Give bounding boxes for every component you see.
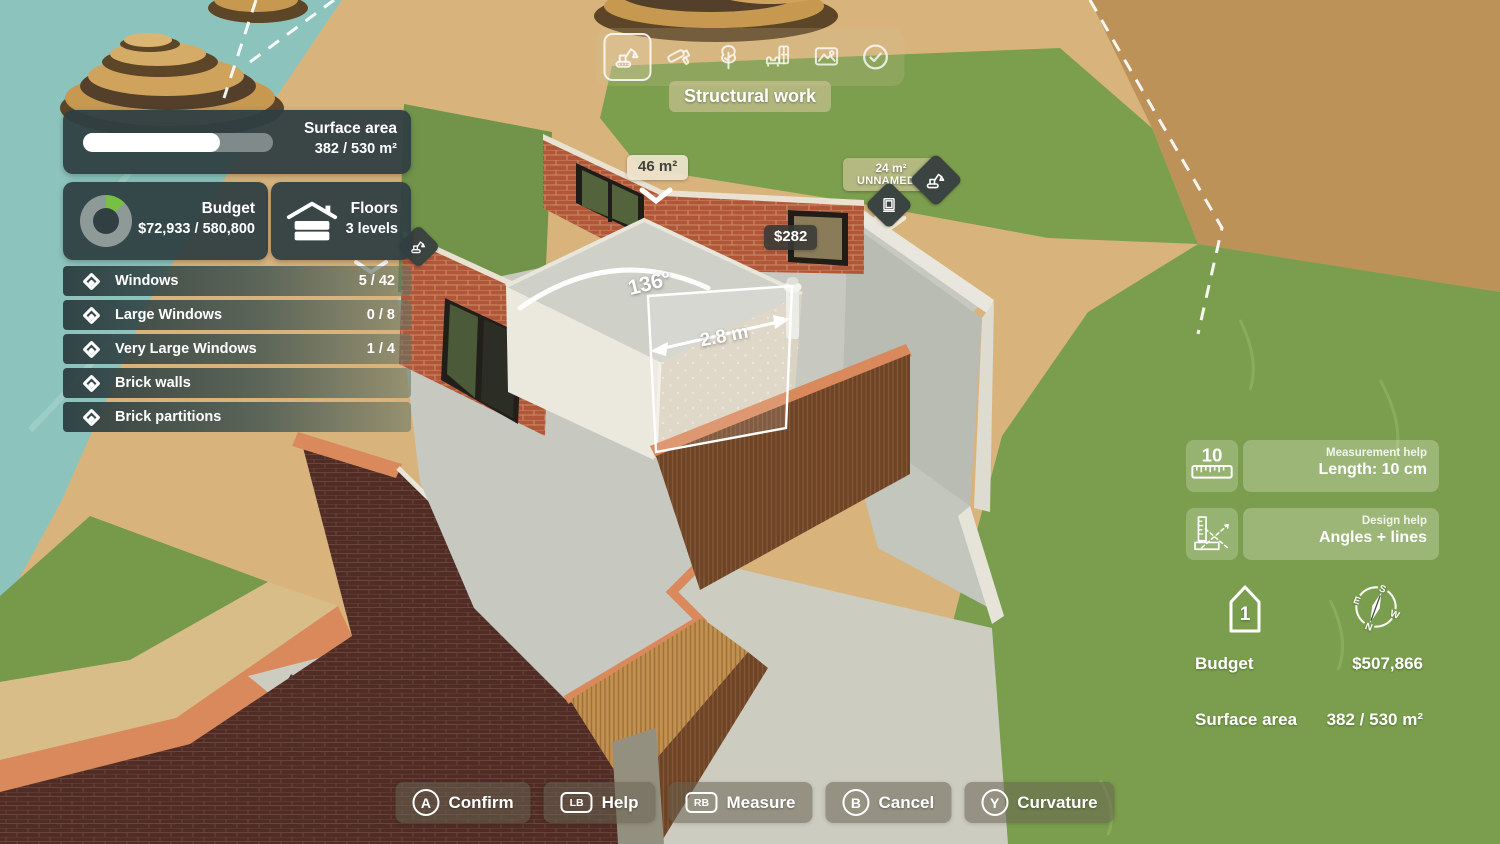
objective-row-large-windows: Large Windows 0 / 8 (63, 300, 411, 330)
build-mode-toolbar (596, 28, 905, 86)
measurement-help-category: Measurement help (1243, 447, 1427, 459)
objective-row-very-large-windows: Very Large Windows 1 / 4 (63, 334, 411, 364)
svg-text:S: S (1377, 583, 1387, 596)
current-floor-icon: 1 (1223, 580, 1267, 636)
toolbar-icon-excavator[interactable] (604, 33, 652, 81)
toolbar-icon-paint-roller[interactable] (659, 36, 701, 78)
design-help-category: Design help (1243, 515, 1427, 527)
toolbar-icon-tree[interactable] (708, 36, 750, 78)
info-budget-label: Budget (1195, 654, 1254, 674)
confirm-button[interactable]: A Confirm (395, 782, 530, 823)
surface-area-value: 382 / 530 m² (304, 141, 397, 157)
toolbar-icon-confirm-check[interactable] (855, 36, 897, 78)
info-budget-value: $507,866 (1352, 654, 1423, 674)
gamepad-b-icon: B (842, 789, 869, 816)
compass-icon: S W N E (1347, 578, 1405, 636)
budget-title: Budget (138, 200, 255, 218)
floors-panel: Floors 3 levels (271, 182, 411, 260)
toolbar-icon-terrain[interactable] (806, 36, 848, 78)
floors-icon (285, 199, 339, 245)
objective-diamond-icon (82, 306, 100, 324)
toolbar-category-label: Structural work (669, 81, 831, 112)
angle-ruler-icon (1186, 508, 1238, 560)
objective-count: 0 / 8 (367, 307, 395, 323)
surface-area-title: Surface area (304, 120, 397, 138)
controller-hints-bar: A Confirm LB Help RB Measure B Cancel Y … (395, 782, 1114, 823)
help-button[interactable]: LB Help (544, 782, 656, 823)
objectives-list: Windows 5 / 42 Large Windows 0 / 8 Very … (63, 266, 411, 436)
measurement-help-value: Length: 10 cm (1243, 461, 1427, 479)
design-help-value: Angles + lines (1243, 529, 1427, 547)
curvature-button[interactable]: Y Curvature (964, 782, 1114, 823)
info-surface-value: 382 / 530 m² (1327, 710, 1423, 730)
price-tag[interactable]: $282 (764, 225, 817, 250)
floors-value: 3 levels (346, 221, 398, 237)
cancel-button[interactable]: B Cancel (825, 782, 951, 823)
game-screen: 46 m² $282 24 m² UNNAMED 4 136° 2.8 m (0, 0, 1500, 844)
svg-text:N: N (1363, 621, 1373, 634)
room-area-tag[interactable]: 46 m² (627, 155, 688, 180)
objective-diamond-icon (82, 408, 100, 426)
gamepad-a-icon: A (412, 789, 439, 816)
svg-text:10: 10 (1202, 445, 1223, 466)
objective-label: Large Windows (115, 307, 222, 323)
measure-button[interactable]: RB Measure (668, 782, 812, 823)
surface-progress-fill (83, 133, 220, 152)
objective-label: Windows (115, 273, 179, 289)
objective-label: Very Large Windows (115, 341, 257, 357)
objective-label: Brick walls (115, 375, 191, 391)
floors-title: Floors (346, 200, 398, 218)
gamepad-rb-icon: RB (685, 792, 717, 813)
svg-text:1: 1 (1240, 604, 1251, 625)
objective-diamond-icon (82, 374, 100, 392)
objective-row-brick-partitions: Brick partitions (63, 402, 411, 432)
objective-diamond-icon (82, 340, 100, 358)
objective-count: 5 / 42 (359, 273, 395, 289)
surface-progress-bar (83, 133, 273, 152)
info-surface-label: Surface area (1195, 710, 1297, 730)
surface-area-panel: Surface area 382 / 530 m² (63, 110, 411, 174)
objective-count: 1 / 4 (367, 341, 395, 357)
objective-row-brick-walls: Brick walls (63, 368, 411, 398)
budget-value: $72,933 / 580,800 (138, 221, 255, 237)
objective-diamond-icon (82, 272, 100, 290)
svg-text:E: E (1352, 595, 1362, 608)
gamepad-lb-icon: LB (561, 792, 593, 813)
objective-row-windows: Windows 5 / 42 (63, 266, 411, 296)
budget-donut (80, 195, 132, 247)
objective-label: Brick partitions (115, 409, 221, 425)
toolbar-icon-furniture[interactable] (757, 36, 799, 78)
budget-panel: Budget $72,933 / 580,800 (63, 182, 268, 260)
gamepad-y-icon: Y (981, 789, 1008, 816)
ruler-icon: 10 (1186, 440, 1238, 492)
